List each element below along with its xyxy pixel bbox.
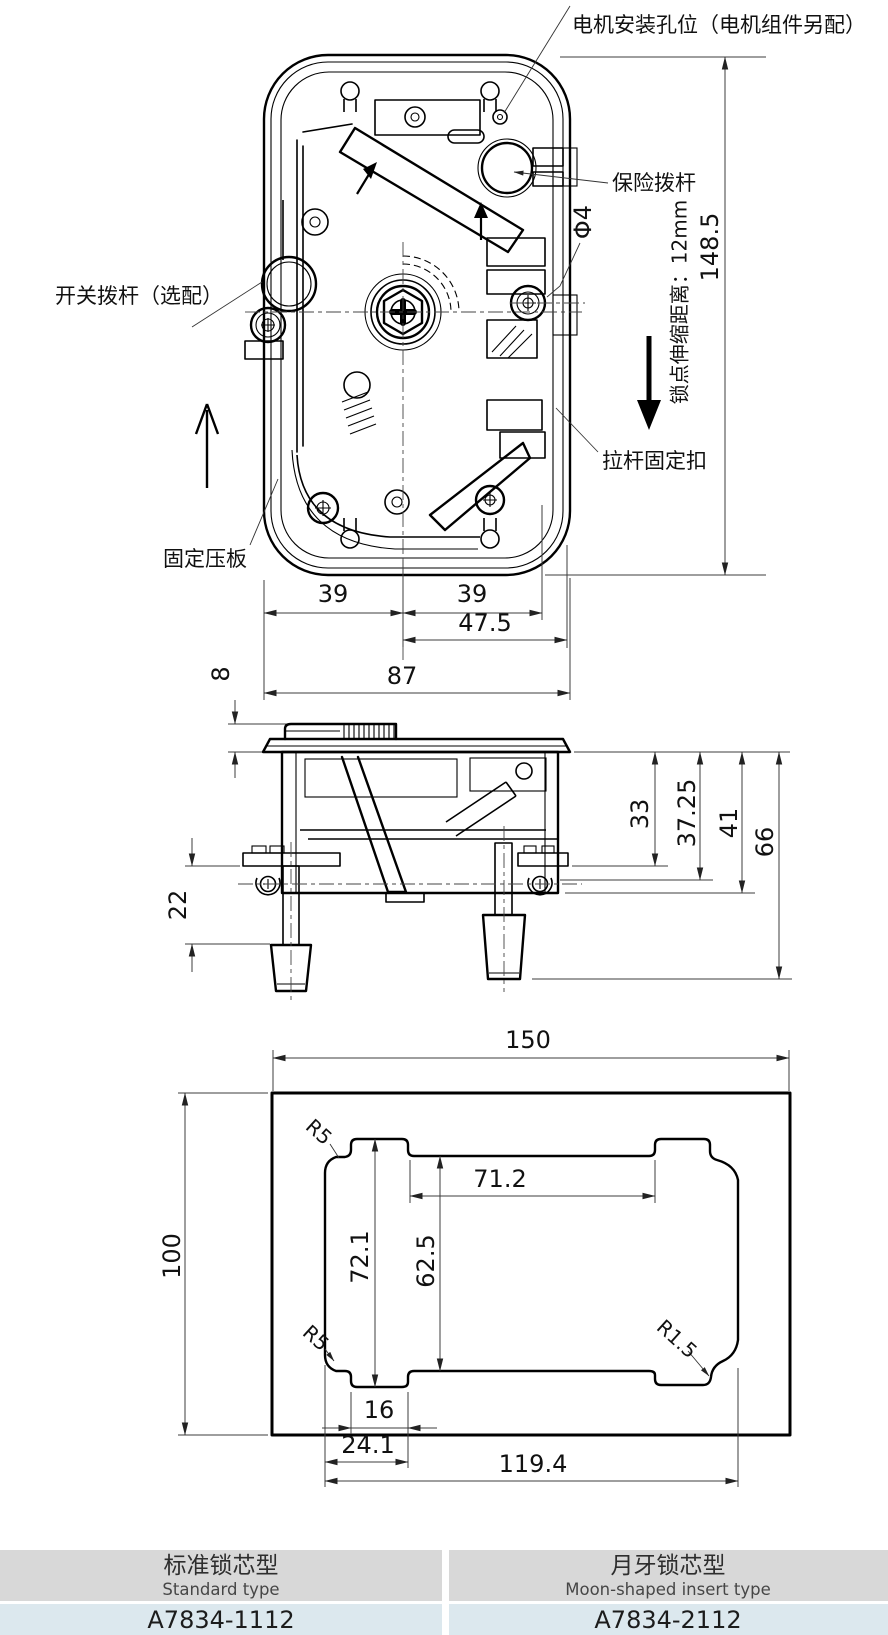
- knurl-hatch: [344, 724, 394, 739]
- up-arrow: [196, 404, 218, 488]
- type-table: 标准锁芯型 Standard type 月牙锁芯型 Moon-shaped in…: [0, 1550, 888, 1635]
- cutout-dimensions: 150 100 71.2 72.1 62.5 16 24.1 119.4 R5: [158, 1026, 789, 1487]
- lock-stroke-label: 锁点伸缩距离：12mm: [668, 200, 692, 404]
- lock-outer-shell: [264, 55, 570, 575]
- dim-71-2: 71.2: [473, 1165, 526, 1193]
- back-view: [196, 55, 661, 660]
- dim-22: 22: [164, 890, 192, 921]
- moon-model: A7834-2112: [594, 1606, 741, 1634]
- dim-41: 41: [715, 808, 743, 839]
- dim-72-1: 72.1: [346, 1230, 374, 1283]
- rod-clip-label: 拉杆固定扣: [602, 449, 707, 473]
- radius-bottom-left: R5: [298, 1320, 334, 1356]
- dim-39-left: 39: [318, 580, 349, 608]
- slot: [448, 130, 484, 143]
- direction-arrows: [196, 162, 488, 488]
- standard-type-en: Standard type: [162, 1580, 279, 1599]
- dim-62-5: 62.5: [412, 1234, 440, 1287]
- left-bracket: [243, 846, 340, 895]
- dim-24-1: 24.1: [341, 1431, 394, 1459]
- dim-119-4: 119.4: [499, 1450, 568, 1478]
- dim-47-5: 47.5: [458, 609, 511, 637]
- dim-39-right: 39: [457, 580, 488, 608]
- back-view-labels: 电机安装孔位（电机组件另配） 保险拨杆 Φ4 锁点伸缩距离：12mm 拉杆固定扣…: [55, 6, 866, 571]
- motor-bracket: [375, 100, 507, 143]
- dim-16: 16: [364, 1396, 395, 1424]
- standard-type-cn: 标准锁芯型: [164, 1553, 279, 1579]
- dim-66: 66: [751, 827, 779, 858]
- rod-clip-cluster: [430, 400, 545, 530]
- drawing-svg: 电机安装孔位（电机组件另配） 保险拨杆 Φ4 锁点伸缩距离：12mm 拉杆固定扣…: [0, 0, 888, 1635]
- radius-bottom-right: R1.5: [652, 1315, 702, 1363]
- dim-37-25: 37.25: [673, 779, 701, 848]
- switch-lever: [245, 200, 328, 359]
- radius-top-left: R5: [301, 1114, 337, 1150]
- dim-87: 87: [387, 662, 418, 690]
- hole-dia-label: Φ4: [569, 205, 597, 239]
- stroke-down-arrow: [637, 336, 661, 430]
- dim-100: 100: [158, 1233, 186, 1279]
- standard-model: A7834-1112: [147, 1606, 294, 1634]
- central-screw: [365, 256, 459, 350]
- safety-lever: [478, 139, 577, 197]
- technical-drawing-page: 电机安装孔位（电机组件另配） 保险拨杆 Φ4 锁点伸缩距离：12mm 拉杆固定扣…: [0, 0, 888, 1635]
- right-bracket: [518, 846, 568, 895]
- dim-33: 33: [626, 799, 654, 830]
- motor-hole-label: 电机安装孔位（电机组件另配）: [572, 13, 866, 37]
- safety-lever-label: 保险拨杆: [612, 171, 696, 195]
- side-view: [238, 724, 582, 1002]
- dim-8: 8: [207, 666, 235, 681]
- switch-lever-label: 开关拨杆（选配）: [55, 284, 223, 308]
- moon-type-cn: 月牙锁芯型: [611, 1553, 726, 1579]
- spring-anchor: [342, 372, 376, 434]
- fixing-plate-label: 固定压板: [163, 547, 247, 571]
- dim-148-5: 148.5: [696, 213, 724, 282]
- dim-150: 150: [505, 1026, 551, 1054]
- moon-type-en: Moon-shaped insert type: [565, 1580, 771, 1599]
